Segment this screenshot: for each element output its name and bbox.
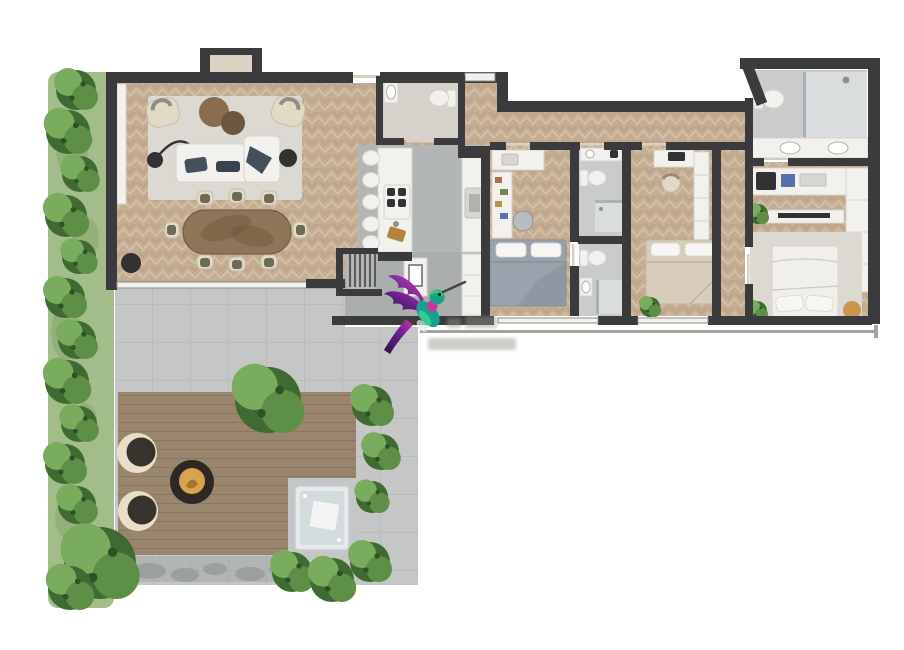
eye: [438, 293, 441, 296]
wardrobe: [694, 152, 709, 242]
window: [638, 318, 708, 323]
coffee-table: [221, 111, 245, 135]
wall-segment: [745, 98, 753, 247]
lounge-chair: [117, 433, 157, 473]
wall-segment: [570, 266, 579, 316]
fireplace-nook: [200, 48, 262, 73]
bed-beige: [646, 240, 718, 304]
wall-segment: [745, 284, 753, 316]
laptop: [502, 154, 518, 165]
shelf-item: [495, 177, 502, 183]
door: [747, 254, 750, 284]
sink: [780, 142, 800, 154]
dining-chair: [261, 255, 277, 269]
sink: [586, 150, 594, 158]
floor-sliver: [345, 145, 358, 252]
shelf-item: [500, 213, 508, 219]
shower-head: [843, 77, 850, 84]
dining-chair: [197, 191, 213, 205]
king-bed: [772, 246, 838, 318]
dining-chair: [261, 191, 277, 205]
shelf-item: [495, 201, 502, 207]
wall-segment: [578, 236, 622, 244]
storage-bin: [800, 174, 826, 186]
fire-pit: [170, 460, 214, 504]
toilet: [430, 90, 457, 107]
bed-gray: [490, 240, 566, 306]
door: [642, 143, 666, 146]
side-table: [279, 149, 297, 167]
shower: [596, 280, 622, 314]
wall-segment: [345, 72, 353, 83]
wall-segment: [666, 142, 748, 150]
double-vanity: [752, 138, 868, 158]
storage-box: [781, 174, 795, 187]
toilet: [580, 250, 606, 266]
wall-segment: [458, 76, 465, 146]
pedestal-sink: [384, 82, 398, 103]
wall-segment: [750, 158, 764, 166]
chair: [662, 174, 680, 192]
wall-segment: [481, 146, 490, 316]
wall-segment: [458, 146, 490, 158]
window: [498, 318, 598, 323]
desk-item: [668, 152, 685, 161]
wall-segment: [508, 101, 748, 112]
wall-segment: [708, 316, 872, 325]
accessory: [610, 150, 618, 158]
wall-segment: [376, 76, 383, 142]
tv: [778, 213, 830, 218]
bar-stool: [363, 173, 380, 188]
wall-segment: [788, 158, 868, 166]
wall-segment: [497, 72, 508, 112]
wall-segment: [376, 138, 404, 145]
bar-stool: [363, 151, 380, 166]
sink: [580, 278, 592, 296]
floor-plan-svg: [0, 0, 904, 650]
sink: [828, 142, 848, 154]
cooktop: [384, 185, 410, 219]
door: [406, 140, 434, 143]
office-chair: [513, 211, 533, 231]
door: [506, 143, 530, 146]
tv-console: [764, 210, 844, 223]
floor-plan-image: [0, 0, 904, 650]
wall-shelf: [117, 84, 126, 204]
planter: [121, 253, 141, 273]
wall-segment: [622, 146, 631, 316]
wall-segment: [868, 58, 880, 324]
safe: [756, 172, 776, 190]
balcony-line: [420, 330, 876, 333]
window: [465, 73, 495, 81]
wall-segment: [570, 146, 579, 242]
wall-segment: [712, 146, 721, 316]
hot-tub: [295, 486, 349, 550]
island-sink: [393, 221, 399, 227]
wall-segment: [598, 316, 638, 325]
bar-stool: [363, 195, 380, 210]
bar-stool: [363, 217, 380, 232]
door: [580, 143, 604, 146]
entry-door: [353, 75, 380, 78]
entry-stairs: [346, 252, 377, 289]
door: [572, 244, 575, 266]
wall-segment: [740, 58, 880, 69]
dining-chair: [165, 222, 179, 238]
wall-segment: [106, 72, 117, 290]
dining-chair: [197, 255, 213, 269]
dining-chair: [229, 189, 245, 203]
wall-segment: [434, 138, 465, 145]
wall-segment: [106, 72, 352, 83]
dining-chair: [293, 222, 307, 238]
shelf-item: [500, 189, 508, 195]
wall-segment: [336, 289, 382, 296]
wall-segment: [490, 142, 506, 150]
master-corridor-floor: [721, 148, 745, 316]
shower: [595, 200, 622, 232]
wall-segment: [378, 252, 412, 261]
balcony-tick: [874, 325, 878, 338]
lounge-chair: [118, 491, 158, 531]
toilet: [580, 170, 606, 186]
wall-segment: [530, 142, 580, 150]
wall-segment: [336, 248, 343, 295]
wall-segment: [604, 142, 642, 150]
dining-chair: [229, 257, 245, 271]
